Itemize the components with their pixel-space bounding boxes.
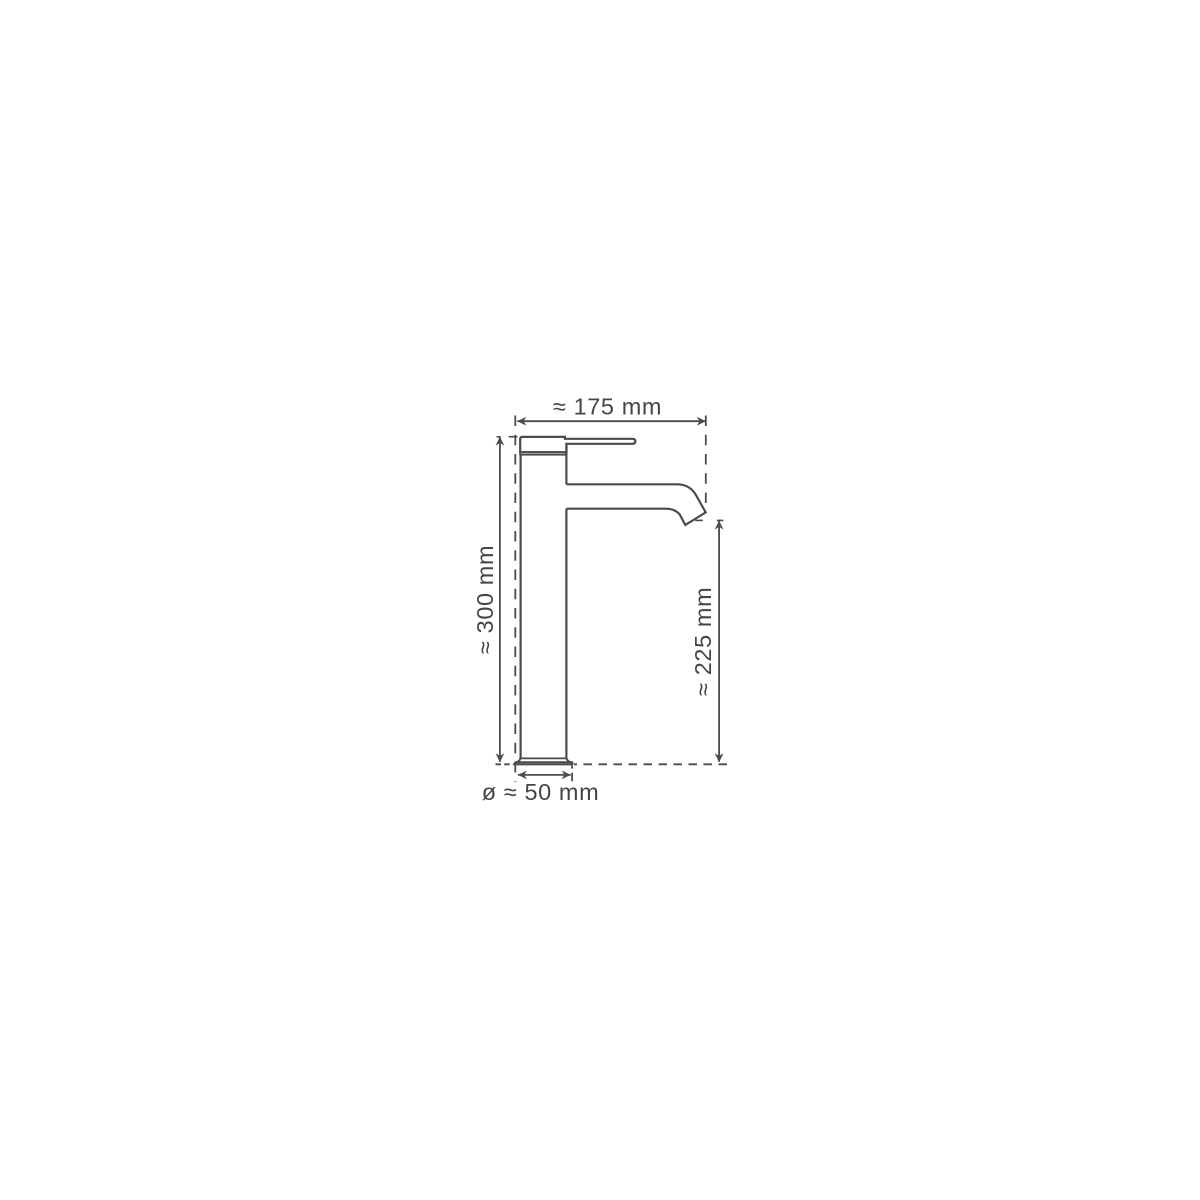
svg-text:≈ 175 mm: ≈ 175 mm [553,394,662,420]
svg-text:ø ≈ 50 mm: ø ≈ 50 mm [482,779,600,805]
svg-text:≈ 225 mm: ≈ 225 mm [690,587,716,696]
svg-text:≈ 300 mm: ≈ 300 mm [472,545,498,654]
